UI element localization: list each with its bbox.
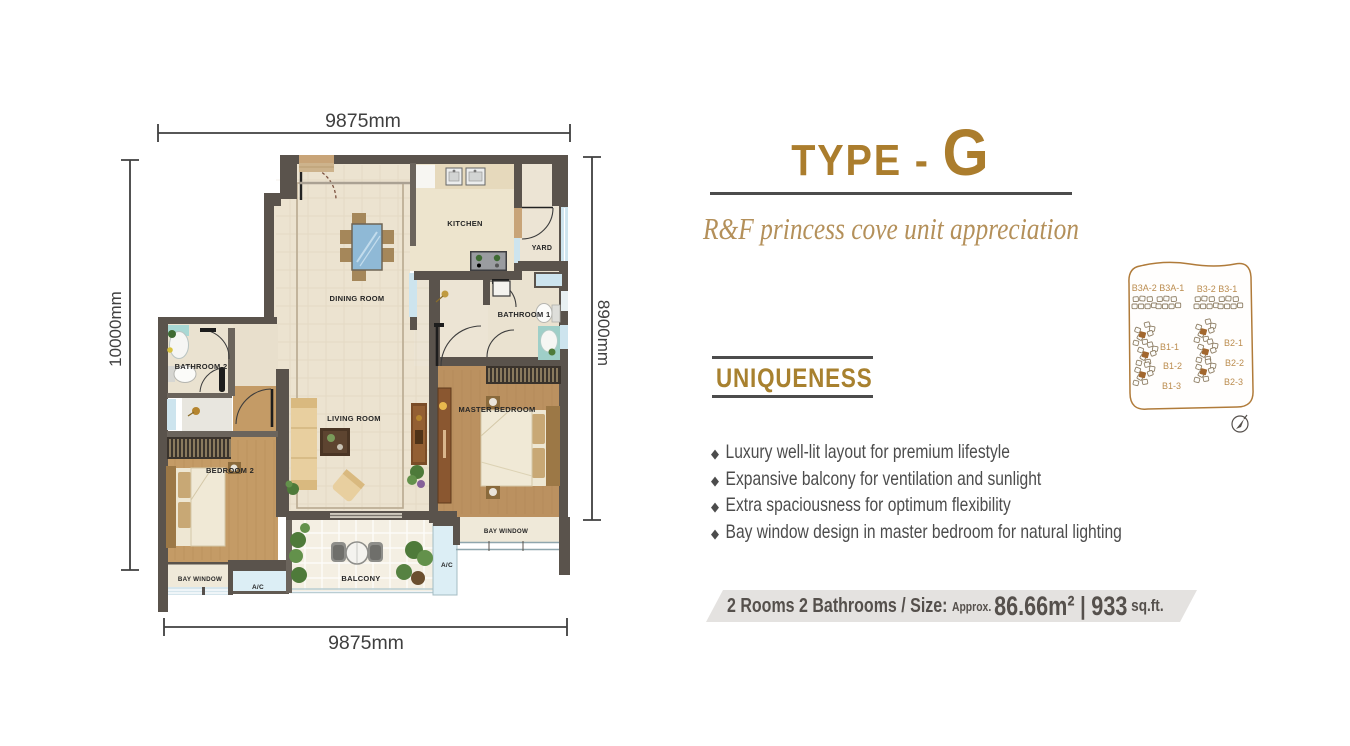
svg-text:B1-3: B1-3: [1162, 381, 1181, 391]
svg-text:9875mm: 9875mm: [325, 110, 401, 132]
svg-text:8900mm: 8900mm: [594, 300, 613, 366]
svg-text:B2-3: B2-3: [1224, 377, 1243, 387]
svg-text:BAY WINDOW: BAY WINDOW: [484, 528, 528, 535]
svg-text:MASTER BEDROOM: MASTER BEDROOM: [458, 405, 535, 414]
svg-text:BAY WINDOW: BAY WINDOW: [178, 576, 222, 583]
svg-text:A/C: A/C: [441, 562, 453, 569]
svg-text:BEDROOM 2: BEDROOM 2: [206, 466, 254, 475]
svg-text:YARD: YARD: [532, 245, 552, 252]
svg-text:B2-2: B2-2: [1225, 358, 1244, 368]
svg-text:KITCHEN: KITCHEN: [447, 219, 482, 228]
svg-text:B1-2: B1-2: [1163, 361, 1182, 371]
svg-text:BATHROOM 1: BATHROOM 1: [498, 310, 551, 319]
svg-text:B3-2 B3-1: B3-2 B3-1: [1197, 284, 1238, 294]
svg-text:A/C: A/C: [252, 584, 264, 591]
svg-text:DINING ROOM: DINING ROOM: [330, 294, 385, 303]
svg-text:9875mm: 9875mm: [328, 632, 404, 654]
svg-text:LIVING ROOM: LIVING ROOM: [327, 414, 381, 423]
svg-text:B3A-2 B3A-1: B3A-2 B3A-1: [1132, 283, 1185, 293]
svg-text:10000mm: 10000mm: [106, 291, 125, 367]
svg-text:BALCONY: BALCONY: [341, 574, 380, 583]
svg-text:B2-1: B2-1: [1224, 338, 1243, 348]
svg-text:BATHROOM 2: BATHROOM 2: [175, 362, 228, 371]
svg-text:B1-1: B1-1: [1160, 342, 1179, 352]
